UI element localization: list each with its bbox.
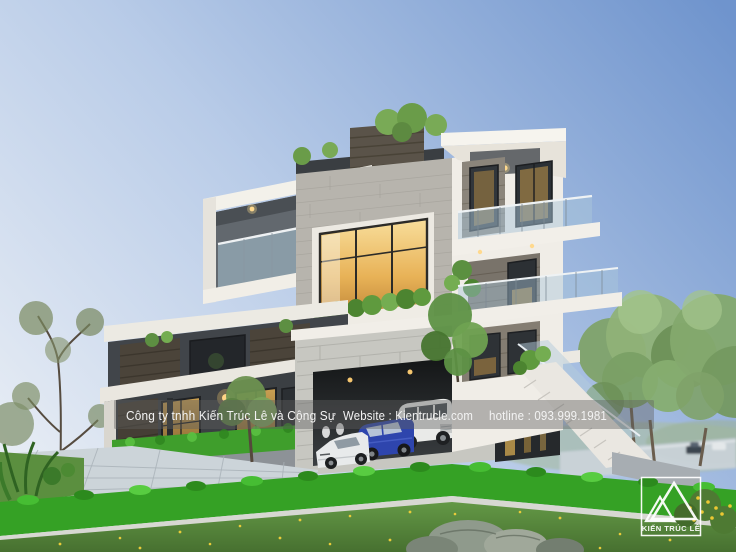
logo-brand-text: KIẾN TRÚC LÊ — [642, 523, 701, 533]
scene-render: Công ty tnhh Kiến Trúc Lê và Cộng Sự Web… — [0, 0, 736, 552]
architectural-render-image: Công ty tnhh Kiến Trúc Lê và Cộng Sự Web… — [0, 0, 736, 552]
distant-car-white — [712, 443, 726, 450]
company-name-text: Công ty tnhh Kiến Trúc Lê và Cộng Sự — [126, 408, 336, 423]
info-bar: Công ty tnhh Kiến Trúc Lê và Cộng Sự Web… — [114, 400, 654, 429]
hotline-text: hotline : 093.999.1981 — [489, 408, 607, 423]
website-text: Website : Kientrucle.com — [343, 408, 473, 423]
